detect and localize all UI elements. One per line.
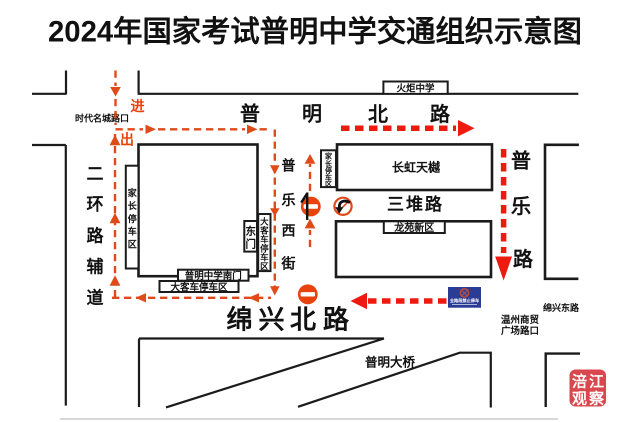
svg-text:家: 家 bbox=[325, 152, 333, 161]
svg-text:路: 路 bbox=[323, 305, 350, 335]
svg-text:门: 门 bbox=[245, 238, 256, 251]
svg-text:察: 察 bbox=[588, 390, 605, 408]
svg-text:火炬中学: 火炬中学 bbox=[396, 83, 435, 95]
svg-text:涪: 涪 bbox=[572, 373, 587, 391]
svg-text:道: 道 bbox=[87, 288, 104, 308]
svg-text:2024年国家考试普明中学交通组织示意图: 2024年国家考试普明中学交通组织示意图 bbox=[48, 15, 582, 49]
svg-text:路: 路 bbox=[513, 247, 534, 271]
svg-text:普: 普 bbox=[282, 158, 296, 174]
svg-text:西: 西 bbox=[282, 223, 296, 239]
svg-text:兴: 兴 bbox=[258, 305, 284, 335]
svg-text:广场路口: 广场路口 bbox=[501, 325, 539, 337]
svg-text:普: 普 bbox=[511, 149, 531, 173]
svg-text:街: 街 bbox=[281, 256, 296, 272]
svg-text:时代名城路口: 时代名城路口 bbox=[75, 113, 129, 124]
svg-text:观: 观 bbox=[572, 391, 587, 408]
svg-text:江: 江 bbox=[589, 373, 604, 391]
svg-text:普: 普 bbox=[240, 102, 260, 126]
svg-text:绵: 绵 bbox=[226, 305, 252, 335]
svg-text:乐: 乐 bbox=[511, 195, 531, 218]
svg-text:大客车停车区: 大客车停车区 bbox=[170, 281, 228, 293]
svg-text:家: 家 bbox=[128, 187, 138, 198]
svg-text:长虹天樾: 长虹天樾 bbox=[392, 160, 441, 175]
svg-text:停: 停 bbox=[325, 166, 332, 175]
svg-text:普明大桥: 普明大桥 bbox=[365, 355, 416, 370]
svg-text:路: 路 bbox=[87, 226, 105, 246]
svg-text:北: 北 bbox=[290, 305, 316, 335]
svg-text:二: 二 bbox=[87, 165, 104, 184]
svg-text:绵兴东路: 绵兴东路 bbox=[543, 302, 580, 313]
svg-text:长: 长 bbox=[128, 200, 138, 211]
svg-text:环: 环 bbox=[87, 195, 104, 214]
svg-text:区: 区 bbox=[260, 262, 269, 272]
svg-text:龙苑新区: 龙苑新区 bbox=[393, 221, 434, 234]
svg-text:全路段禁止停车: 全路段禁止停车 bbox=[449, 297, 480, 304]
svg-text:车: 车 bbox=[128, 226, 137, 237]
svg-text:三堆路: 三堆路 bbox=[387, 194, 444, 214]
svg-text:长: 长 bbox=[325, 159, 333, 168]
svg-text:北: 北 bbox=[368, 103, 388, 126]
svg-text:区: 区 bbox=[325, 181, 332, 189]
svg-text:进: 进 bbox=[131, 98, 145, 114]
svg-text:区: 区 bbox=[128, 239, 137, 249]
svg-text:明: 明 bbox=[302, 103, 322, 126]
svg-text:东: 东 bbox=[245, 225, 256, 238]
svg-text:乐: 乐 bbox=[282, 192, 296, 208]
svg-text:停: 停 bbox=[128, 213, 137, 224]
svg-text:出: 出 bbox=[120, 132, 134, 148]
svg-text:辅: 辅 bbox=[87, 257, 104, 277]
svg-text:温州商贸: 温州商贸 bbox=[501, 314, 540, 326]
svg-text:路: 路 bbox=[430, 102, 451, 126]
